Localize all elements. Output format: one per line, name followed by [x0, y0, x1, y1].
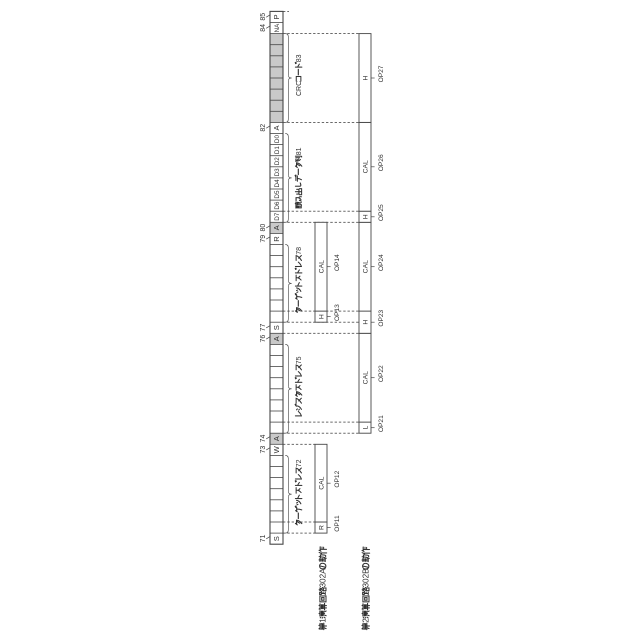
svg-text:302B: 302B	[362, 568, 371, 588]
svg-text:D3: D3	[274, 168, 281, 177]
svg-text:OP23: OP23	[378, 309, 385, 326]
svg-text:OP26: OP26	[378, 154, 385, 171]
svg-text:P: P	[272, 14, 281, 19]
svg-text:A: A	[272, 224, 281, 230]
svg-text:OP25: OP25	[378, 204, 385, 221]
svg-text:OP13: OP13	[334, 304, 341, 321]
svg-text:1: 1	[319, 618, 328, 623]
svg-text:H: H	[362, 214, 369, 219]
svg-text:76: 76	[260, 335, 267, 343]
svg-text:S: S	[272, 536, 281, 541]
svg-text:D6: D6	[274, 201, 281, 210]
svg-text:A: A	[272, 335, 281, 341]
svg-text:80: 80	[260, 224, 267, 232]
svg-text:CAL: CAL	[362, 371, 369, 384]
svg-text:H: H	[362, 75, 369, 80]
svg-text:H: H	[362, 320, 369, 325]
svg-text:74: 74	[260, 435, 267, 443]
svg-text:73: 73	[260, 446, 267, 454]
svg-text:77: 77	[260, 324, 267, 332]
svg-text:79: 79	[260, 235, 267, 243]
svg-text:83: 83	[296, 54, 303, 62]
svg-text:CAL: CAL	[318, 260, 325, 273]
svg-text:302A: 302A	[319, 568, 328, 588]
svg-text:NA: NA	[274, 23, 281, 32]
svg-text:82: 82	[260, 124, 267, 132]
svg-text:CAL: CAL	[362, 260, 369, 273]
svg-text:D4: D4	[274, 179, 281, 188]
svg-text:A: A	[272, 124, 281, 130]
svg-text:D2: D2	[274, 157, 281, 166]
svg-text:CAL: CAL	[318, 476, 325, 489]
svg-text:D7: D7	[274, 212, 281, 221]
svg-text:S: S	[272, 325, 281, 330]
svg-text:OP12: OP12	[334, 470, 341, 487]
svg-text:R: R	[272, 236, 281, 242]
svg-text:OP11: OP11	[334, 515, 341, 532]
svg-text:85: 85	[260, 13, 267, 21]
svg-text:OP14: OP14	[334, 254, 341, 271]
svg-text:78: 78	[296, 247, 303, 255]
svg-text:D5: D5	[274, 190, 281, 199]
svg-text:L: L	[362, 426, 369, 430]
svg-text:CAL: CAL	[362, 160, 369, 173]
svg-text:81: 81	[296, 147, 303, 155]
svg-text:H: H	[318, 314, 325, 319]
svg-text:A: A	[272, 435, 281, 441]
svg-text:W: W	[272, 445, 281, 453]
svg-text:CRC: CRC	[296, 81, 303, 96]
svg-text:2: 2	[362, 618, 371, 623]
svg-text:75: 75	[296, 356, 303, 364]
svg-text:OP21: OP21	[378, 415, 385, 432]
svg-text:OP27: OP27	[378, 65, 385, 82]
svg-text:OP22: OP22	[378, 365, 385, 382]
svg-text:OP24: OP24	[378, 254, 385, 271]
svg-text:72: 72	[296, 459, 303, 467]
svg-text:84: 84	[260, 24, 267, 32]
svg-text:D0: D0	[274, 135, 281, 144]
svg-text:R: R	[318, 525, 325, 530]
svg-text:D1: D1	[274, 146, 281, 155]
svg-text:71: 71	[260, 534, 267, 542]
